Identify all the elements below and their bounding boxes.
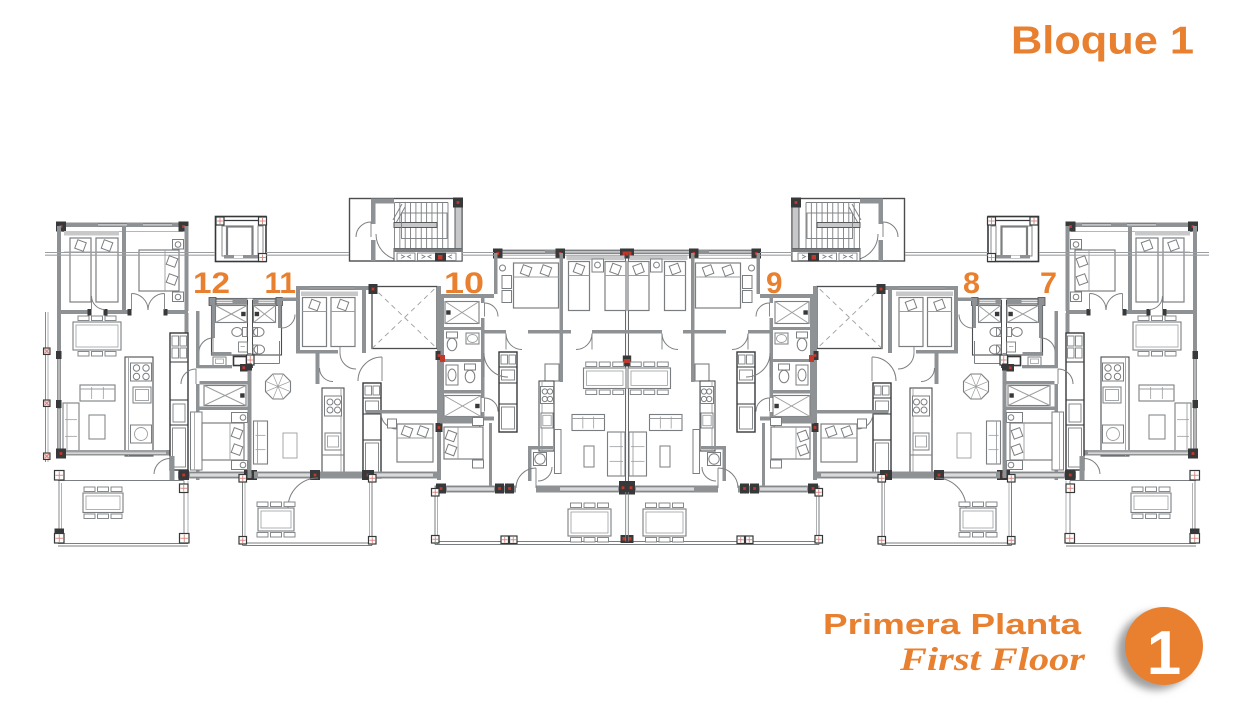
svg-text:11: 11 (265, 267, 297, 300)
svg-text:9: 9 (766, 267, 783, 300)
svg-text:Primera Planta: Primera Planta (823, 609, 1082, 641)
svg-text:Bloque 1: Bloque 1 (1011, 20, 1194, 63)
svg-text:10: 10 (444, 267, 484, 300)
svg-text:First Floor: First Floor (899, 642, 1087, 678)
svg-text:8: 8 (963, 267, 980, 300)
svg-text:1: 1 (1147, 619, 1181, 688)
svg-text:12: 12 (193, 267, 230, 300)
svg-text:7: 7 (1040, 267, 1057, 300)
